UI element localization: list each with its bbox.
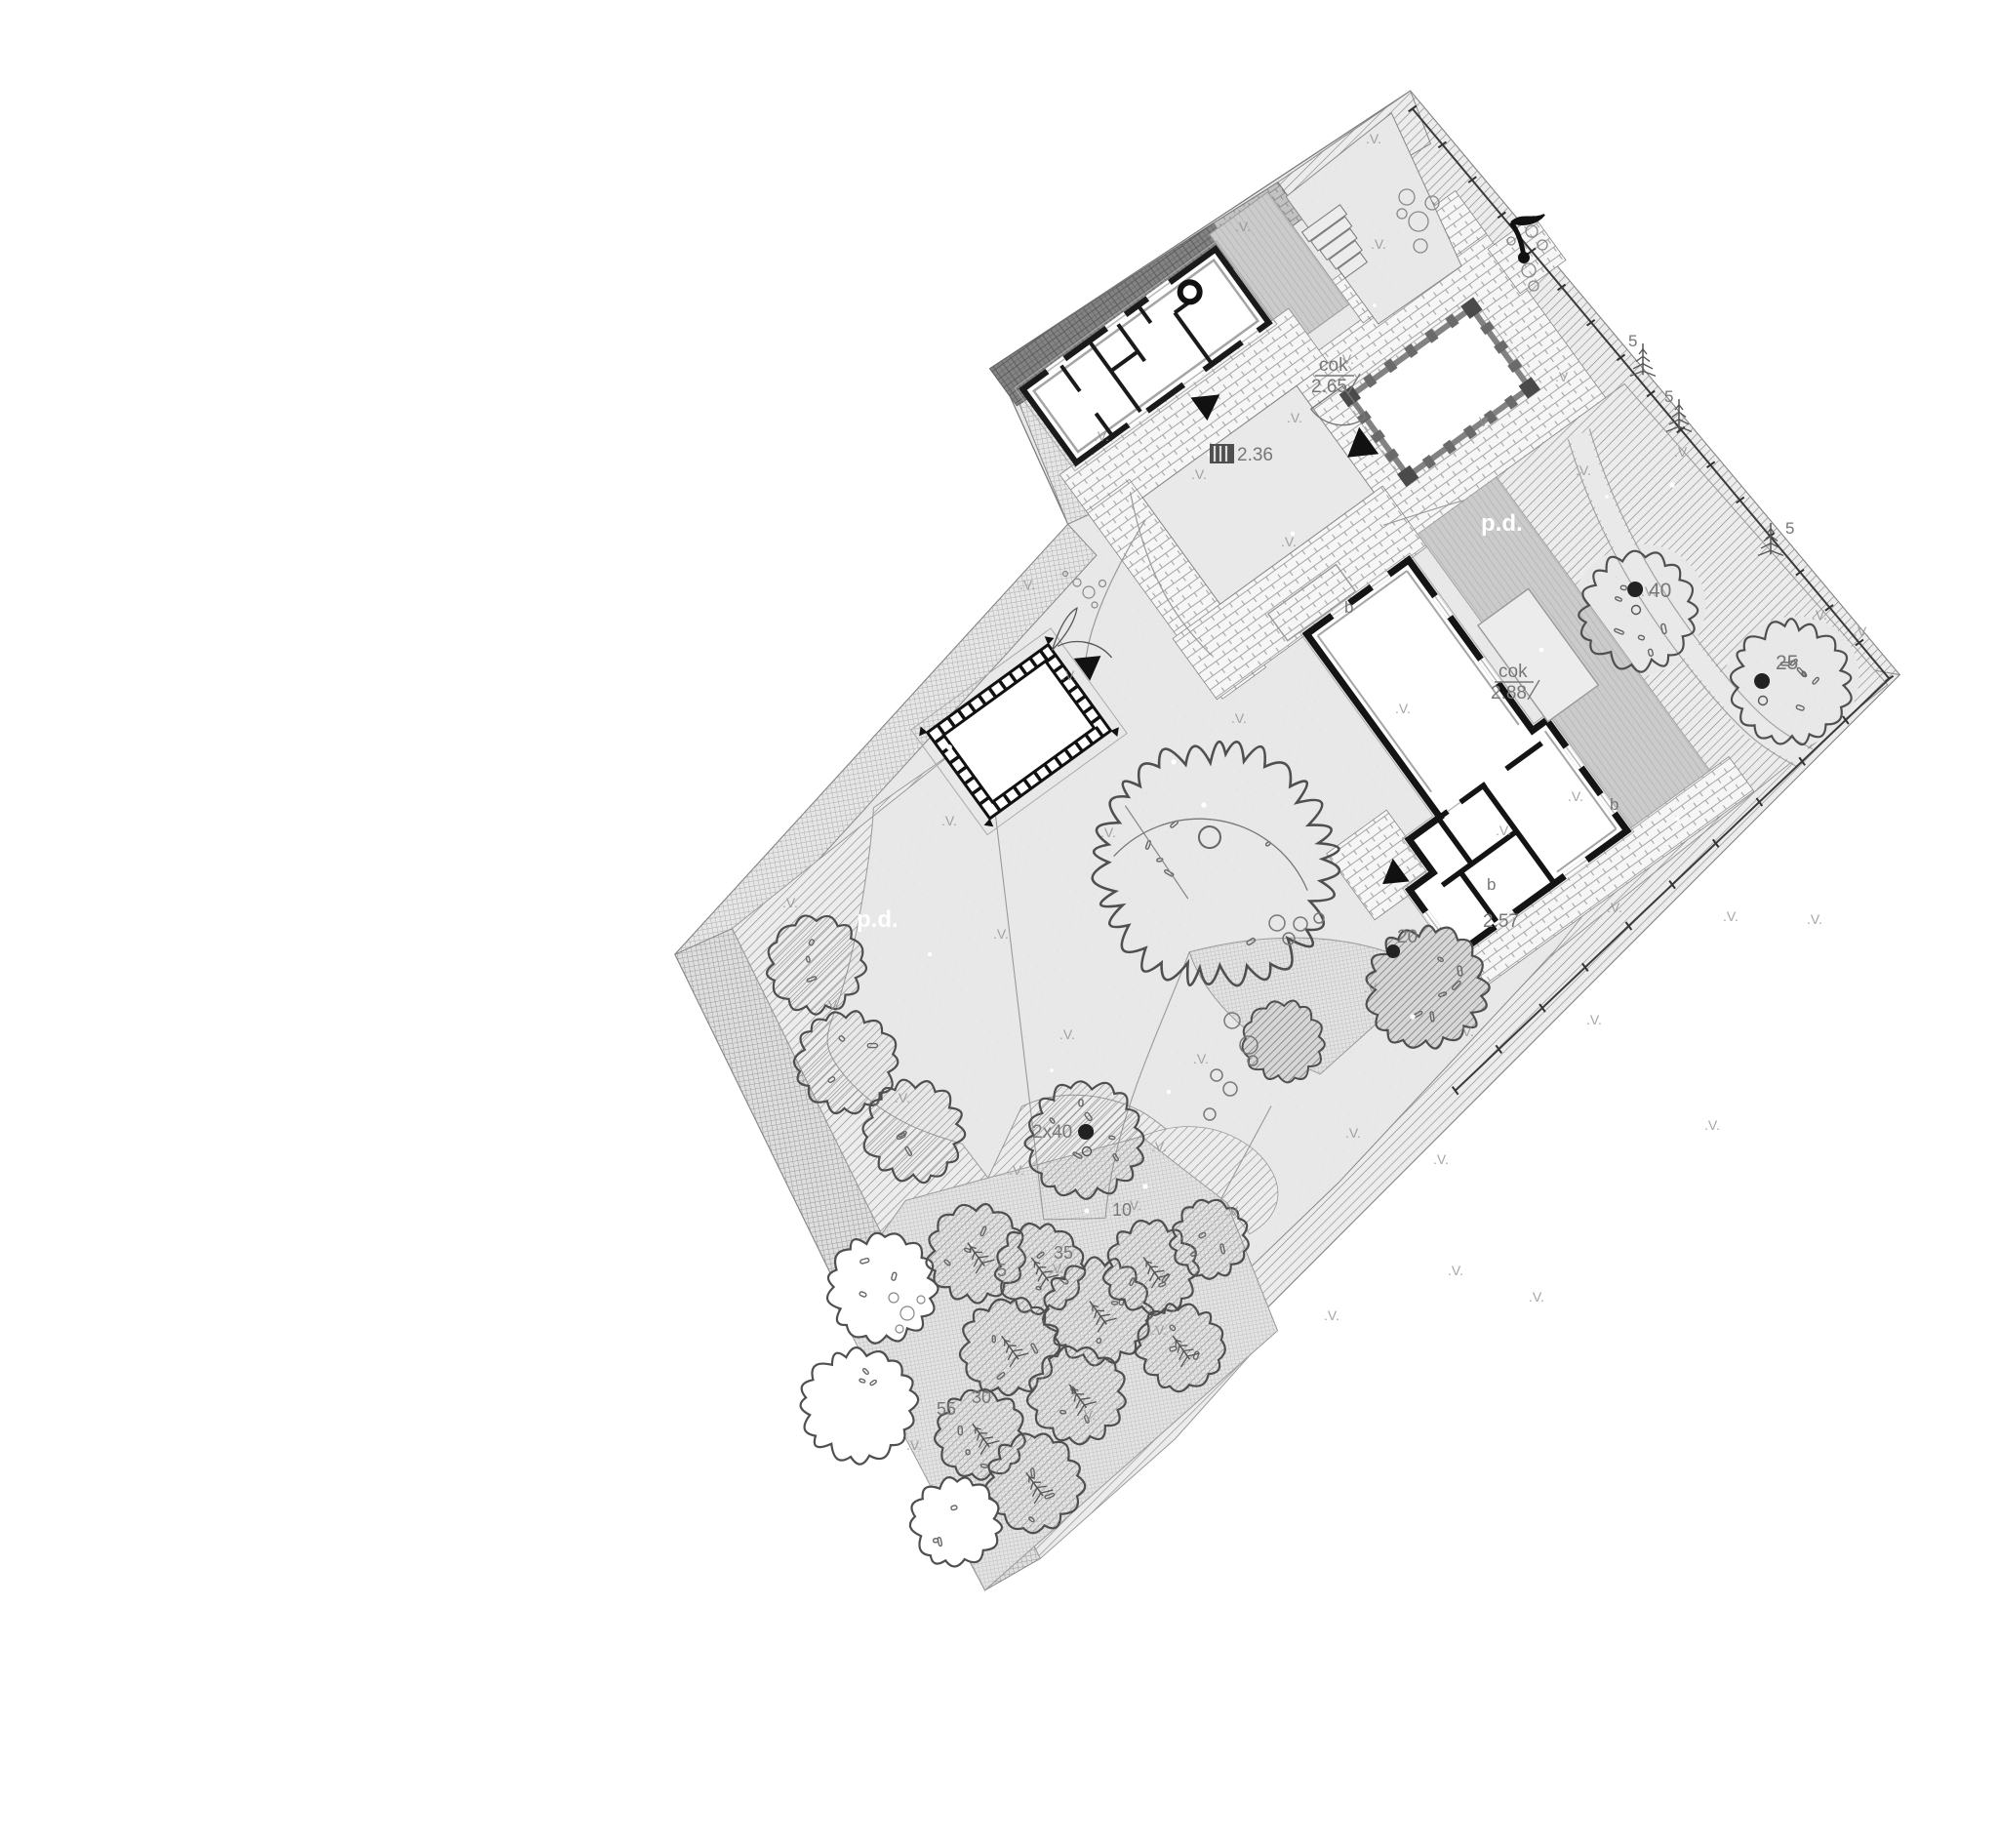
- svg-text:.V.: .V.: [1191, 466, 1207, 482]
- svg-text:5: 5: [1664, 387, 1673, 406]
- svg-text:55: 55: [937, 1399, 956, 1419]
- svg-text:.V.: .V.: [1225, 1203, 1241, 1219]
- svg-text:.V.: .V.: [1607, 900, 1622, 915]
- svg-text:30: 30: [972, 1387, 991, 1407]
- svg-text:.V.: .V.: [1281, 534, 1297, 549]
- svg-text:2.88: 2.88: [1491, 683, 1527, 703]
- svg-text:b: b: [1344, 598, 1353, 617]
- svg-text:.V.: .V.: [1193, 1051, 1209, 1066]
- svg-text:.V.: .V.: [1395, 701, 1411, 716]
- svg-text:.V.: .V.: [941, 813, 957, 828]
- svg-text:.V.: .V.: [1475, 414, 1491, 429]
- svg-text:.V.: .V.: [1151, 1322, 1167, 1338]
- svg-text:.V.: .V.: [1100, 824, 1116, 840]
- svg-text:.V.: .V.: [1807, 911, 1822, 927]
- svg-text:.V.: .V.: [993, 926, 1009, 942]
- svg-text:.V.: .V.: [1496, 823, 1511, 838]
- svg-text:10: 10: [1112, 1200, 1132, 1220]
- svg-text:.V.: .V.: [1151, 1139, 1167, 1154]
- svg-text:2x40: 2x40: [1032, 1122, 1072, 1143]
- svg-text:.V.: .V.: [906, 1437, 922, 1453]
- svg-text:.V.: .V.: [1448, 1263, 1463, 1278]
- svg-text:b: b: [1487, 875, 1496, 894]
- svg-text:.V.: .V.: [1723, 908, 1738, 924]
- svg-text:.V.: .V.: [1231, 710, 1247, 726]
- svg-text:.V.: .V.: [1704, 1117, 1720, 1133]
- svg-text:b: b: [1610, 795, 1618, 814]
- svg-text:p.d.: p.d.: [1481, 510, 1523, 537]
- svg-text:2.57: 2.57: [1483, 911, 1519, 932]
- svg-text:5: 5: [997, 1261, 1007, 1280]
- svg-text:.V.: .V.: [1059, 1026, 1075, 1042]
- svg-text:5: 5: [1785, 519, 1794, 538]
- svg-text:.V.: .V.: [782, 895, 798, 910]
- svg-text:.V.: .V.: [1854, 623, 1869, 639]
- svg-text:cok: cok: [1498, 662, 1528, 682]
- svg-text:.V.: .V.: [895, 1090, 910, 1105]
- svg-text:25: 25: [1776, 652, 1798, 674]
- svg-text:35: 35: [1054, 1243, 1073, 1263]
- svg-text:.V.: .V.: [1366, 131, 1381, 146]
- svg-text:.V.: .V.: [1009, 1162, 1024, 1178]
- svg-text:2.36: 2.36: [1237, 445, 1273, 465]
- svg-text:.V.: .V.: [1080, 1407, 1096, 1423]
- svg-text:.V.: .V.: [1287, 410, 1302, 425]
- svg-text:.V.: .V.: [1019, 577, 1035, 592]
- svg-text:20: 20: [1397, 927, 1418, 947]
- svg-text:.V.: .V.: [1324, 1307, 1339, 1323]
- svg-text:.V.: .V.: [1061, 667, 1077, 683]
- svg-text:.V.: .V.: [824, 997, 840, 1013]
- svg-text:.V.: .V.: [1674, 444, 1690, 460]
- svg-text:.V.: .V.: [1576, 462, 1591, 478]
- svg-text:.V.: .V.: [1433, 1151, 1449, 1167]
- svg-text:.V.: .V.: [1459, 1024, 1474, 1039]
- svg-text:2.65: 2.65: [1311, 377, 1347, 397]
- svg-text:.V.: .V.: [1364, 980, 1379, 995]
- svg-text:.V.: .V.: [1586, 1012, 1602, 1027]
- svg-text:.V.: .V.: [1529, 1289, 1544, 1305]
- svg-text:.V.: .V.: [1555, 369, 1571, 384]
- svg-text:.V.: .V.: [1094, 428, 1109, 444]
- svg-text:.V.: .V.: [1371, 236, 1386, 252]
- svg-text:.V.: .V.: [1812, 607, 1827, 623]
- svg-text:5: 5: [1628, 332, 1637, 350]
- svg-text:.V.: .V.: [1049, 1261, 1064, 1276]
- svg-text:.V.: .V.: [1235, 219, 1251, 234]
- svg-text:p.d.: p.d.: [857, 906, 899, 933]
- svg-text:cok: cok: [1319, 355, 1348, 376]
- svg-text:.V.: .V.: [1568, 788, 1583, 804]
- svg-text:40: 40: [1649, 580, 1671, 602]
- svg-text:.V.: .V.: [1345, 1125, 1361, 1141]
